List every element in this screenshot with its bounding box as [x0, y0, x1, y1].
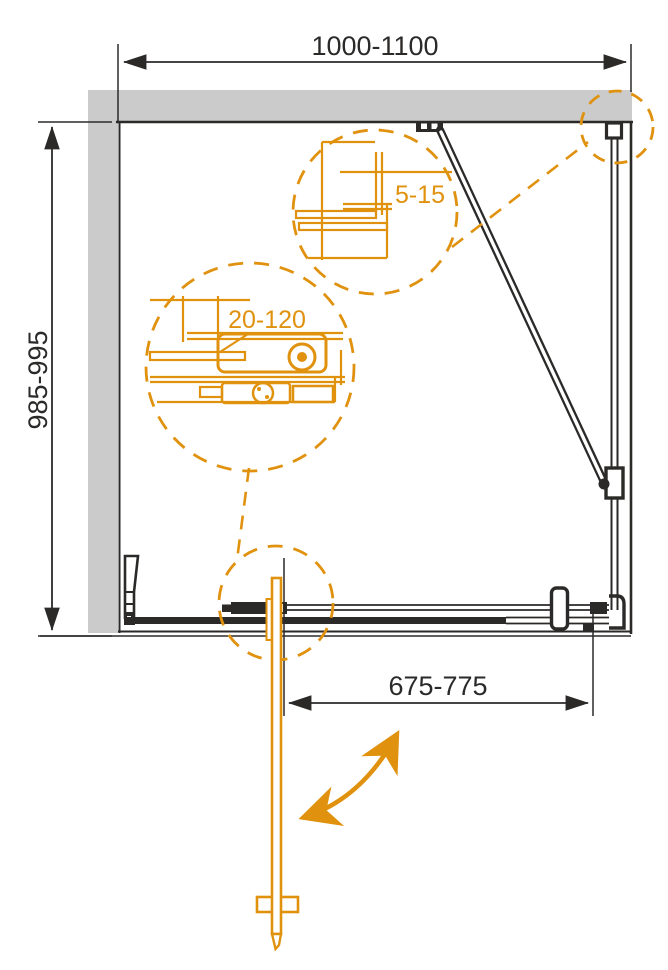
corner-roller	[590, 602, 607, 614]
dimension-bottom: 675-775	[284, 558, 593, 716]
wall-left	[88, 122, 118, 633]
detail-circle-wall-profile: 5-15	[293, 130, 457, 294]
handle-tip	[272, 934, 281, 949]
detail-adjustment-label: 20-120	[228, 306, 306, 334]
bottom-rail	[125, 617, 506, 624]
pivot-door-open	[416, 121, 610, 490]
dimension-top-label: 1000-1100	[311, 31, 438, 61]
detail-circle-roller: 20-120	[146, 263, 354, 471]
dimension-left-label: 985-995	[23, 330, 53, 429]
door-swing-arrow	[305, 736, 396, 817]
door-pivot-joint	[599, 479, 610, 490]
dimension-bottom-label: 675-775	[388, 671, 487, 701]
swing-arrow-curve	[305, 736, 396, 817]
corner-bracket	[552, 588, 568, 629]
drawing-canvas: 1000-1100 985-995	[0, 0, 668, 970]
bracket-screw	[421, 124, 427, 130]
panel-top-wall-profile	[607, 123, 622, 138]
door-handle	[257, 578, 298, 949]
connector-detail-to-handle	[237, 468, 249, 560]
bottom-track-assembly	[124, 556, 624, 632]
detail-bubble	[146, 263, 354, 471]
detail-gap-label: 5-15	[395, 181, 445, 209]
shower-plan-svg: 1000-1100 985-995	[0, 0, 668, 970]
door-glass-core	[441, 132, 602, 478]
fixed-glass-panel	[606, 123, 623, 610]
door-edge-knob	[222, 605, 231, 613]
handle-vertical-bar	[272, 578, 281, 934]
wall-top	[88, 90, 632, 122]
left-wall-profile	[125, 556, 138, 618]
